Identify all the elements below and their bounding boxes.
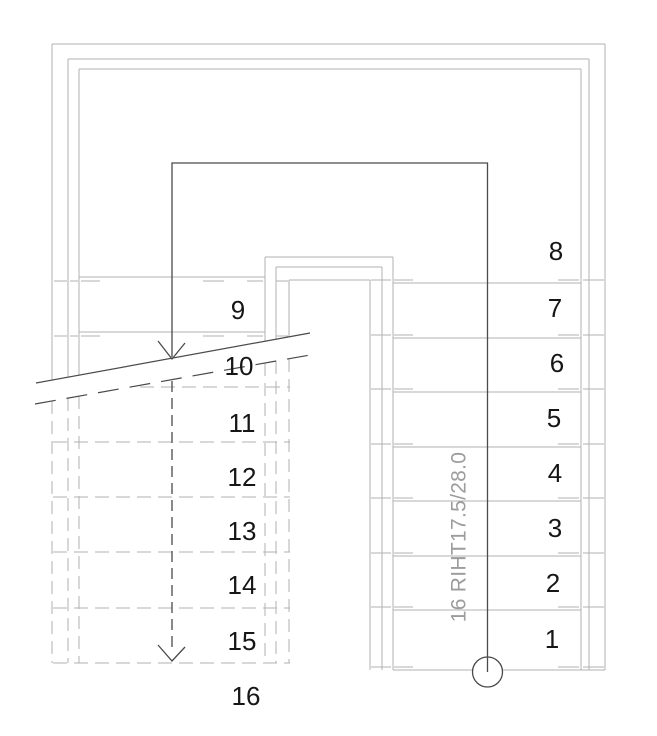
step-number-12: 12 (228, 464, 257, 490)
step-number-16: 16 (232, 683, 261, 709)
walk-line-arrow-down-icon (158, 645, 185, 661)
step-number-9: 9 (231, 297, 245, 323)
step-number-8: 8 (549, 238, 563, 264)
step-number-6: 6 (550, 350, 564, 376)
step-number-13: 13 (228, 518, 257, 544)
stair-plan-canvas: 1 2 3 4 5 6 7 8 9 10 11 12 13 14 15 16 1… (0, 0, 657, 736)
step-number-10: 10 (225, 353, 254, 379)
step-number-7: 7 (548, 295, 562, 321)
step-number-15: 15 (228, 628, 257, 654)
walk-line-solid (172, 163, 488, 672)
step-number-1: 1 (545, 626, 559, 652)
break-line-dashed (35, 355, 310, 404)
step-number-5: 5 (547, 405, 561, 431)
wall-lines (52, 44, 605, 670)
step-number-3: 3 (548, 515, 562, 541)
step-number-11: 11 (229, 410, 256, 436)
step-number-2: 2 (546, 570, 560, 596)
right-flight-step-lines (79, 277, 605, 670)
step-number-14: 14 (228, 572, 257, 598)
stair-annotation: 16 RIHT17.5/28.0 (449, 452, 470, 623)
step-number-4: 4 (548, 460, 562, 486)
